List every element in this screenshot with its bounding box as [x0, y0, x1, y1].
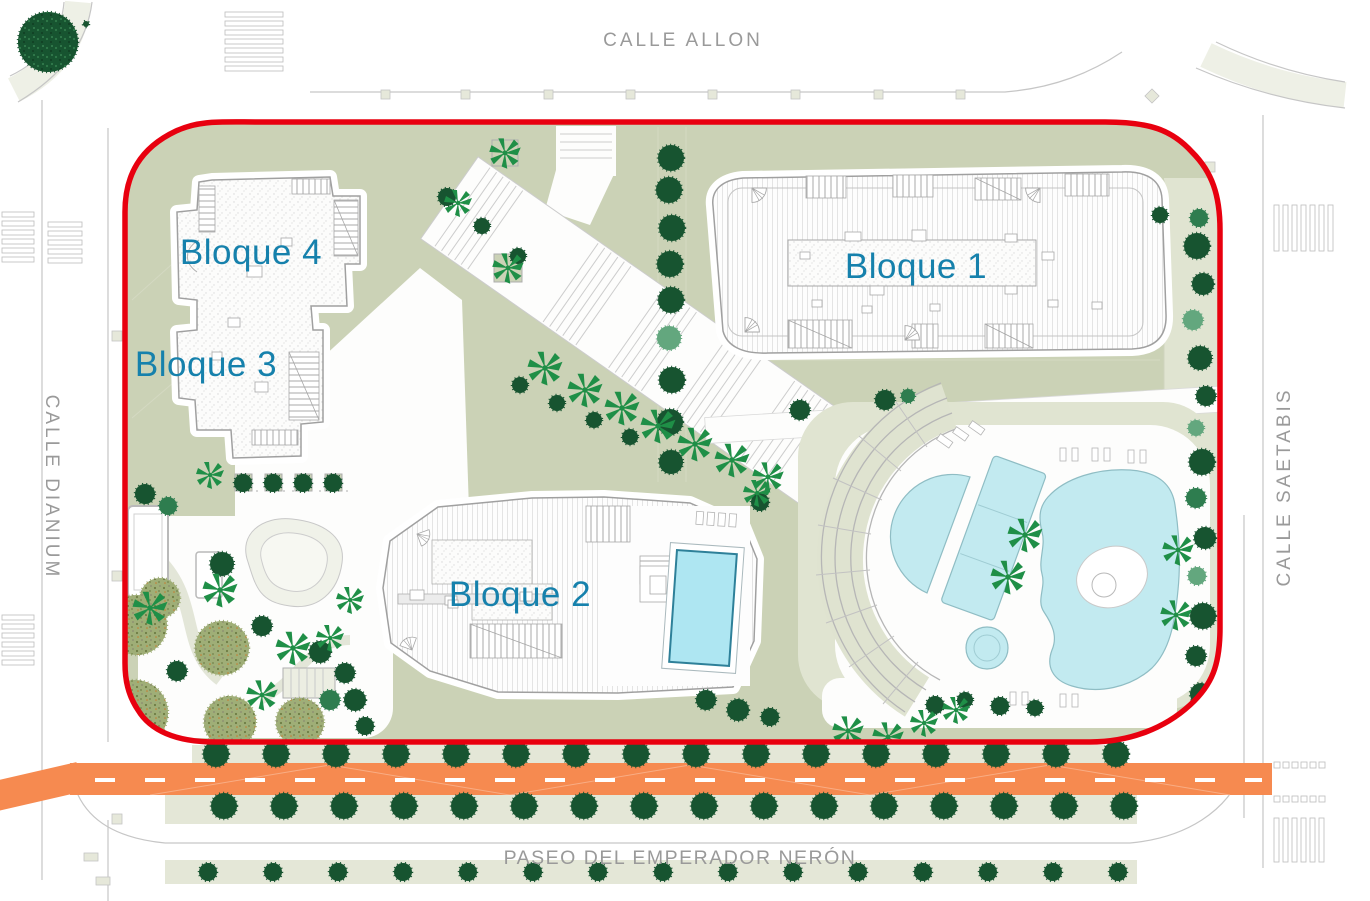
- street-label-bottom: PASEO DEL EMPERADOR NERÓN: [504, 846, 857, 869]
- block-label-bloque-4: Bloque 4: [180, 233, 322, 272]
- street-label-right: CALLE SAETABIS: [1274, 388, 1295, 587]
- block-label-bloque-1: Bloque 1: [845, 247, 987, 286]
- parcel-interior: [102, 122, 1220, 753]
- site-plan-svg: CALLE ALLON CALLE DIANIUM CALLE SAETABIS…: [0, 0, 1370, 901]
- block-label-bloque-2: Bloque 2: [449, 575, 591, 614]
- site-plan: CALLE ALLON CALLE DIANIUM CALLE SAETABIS…: [0, 0, 1370, 901]
- block-label-bloque-3: Bloque 3: [135, 345, 277, 384]
- pool-spa: [966, 627, 1008, 669]
- street-label-left: CALLE DIANIUM: [41, 395, 62, 580]
- street-label-top: CALLE ALLON: [603, 30, 763, 51]
